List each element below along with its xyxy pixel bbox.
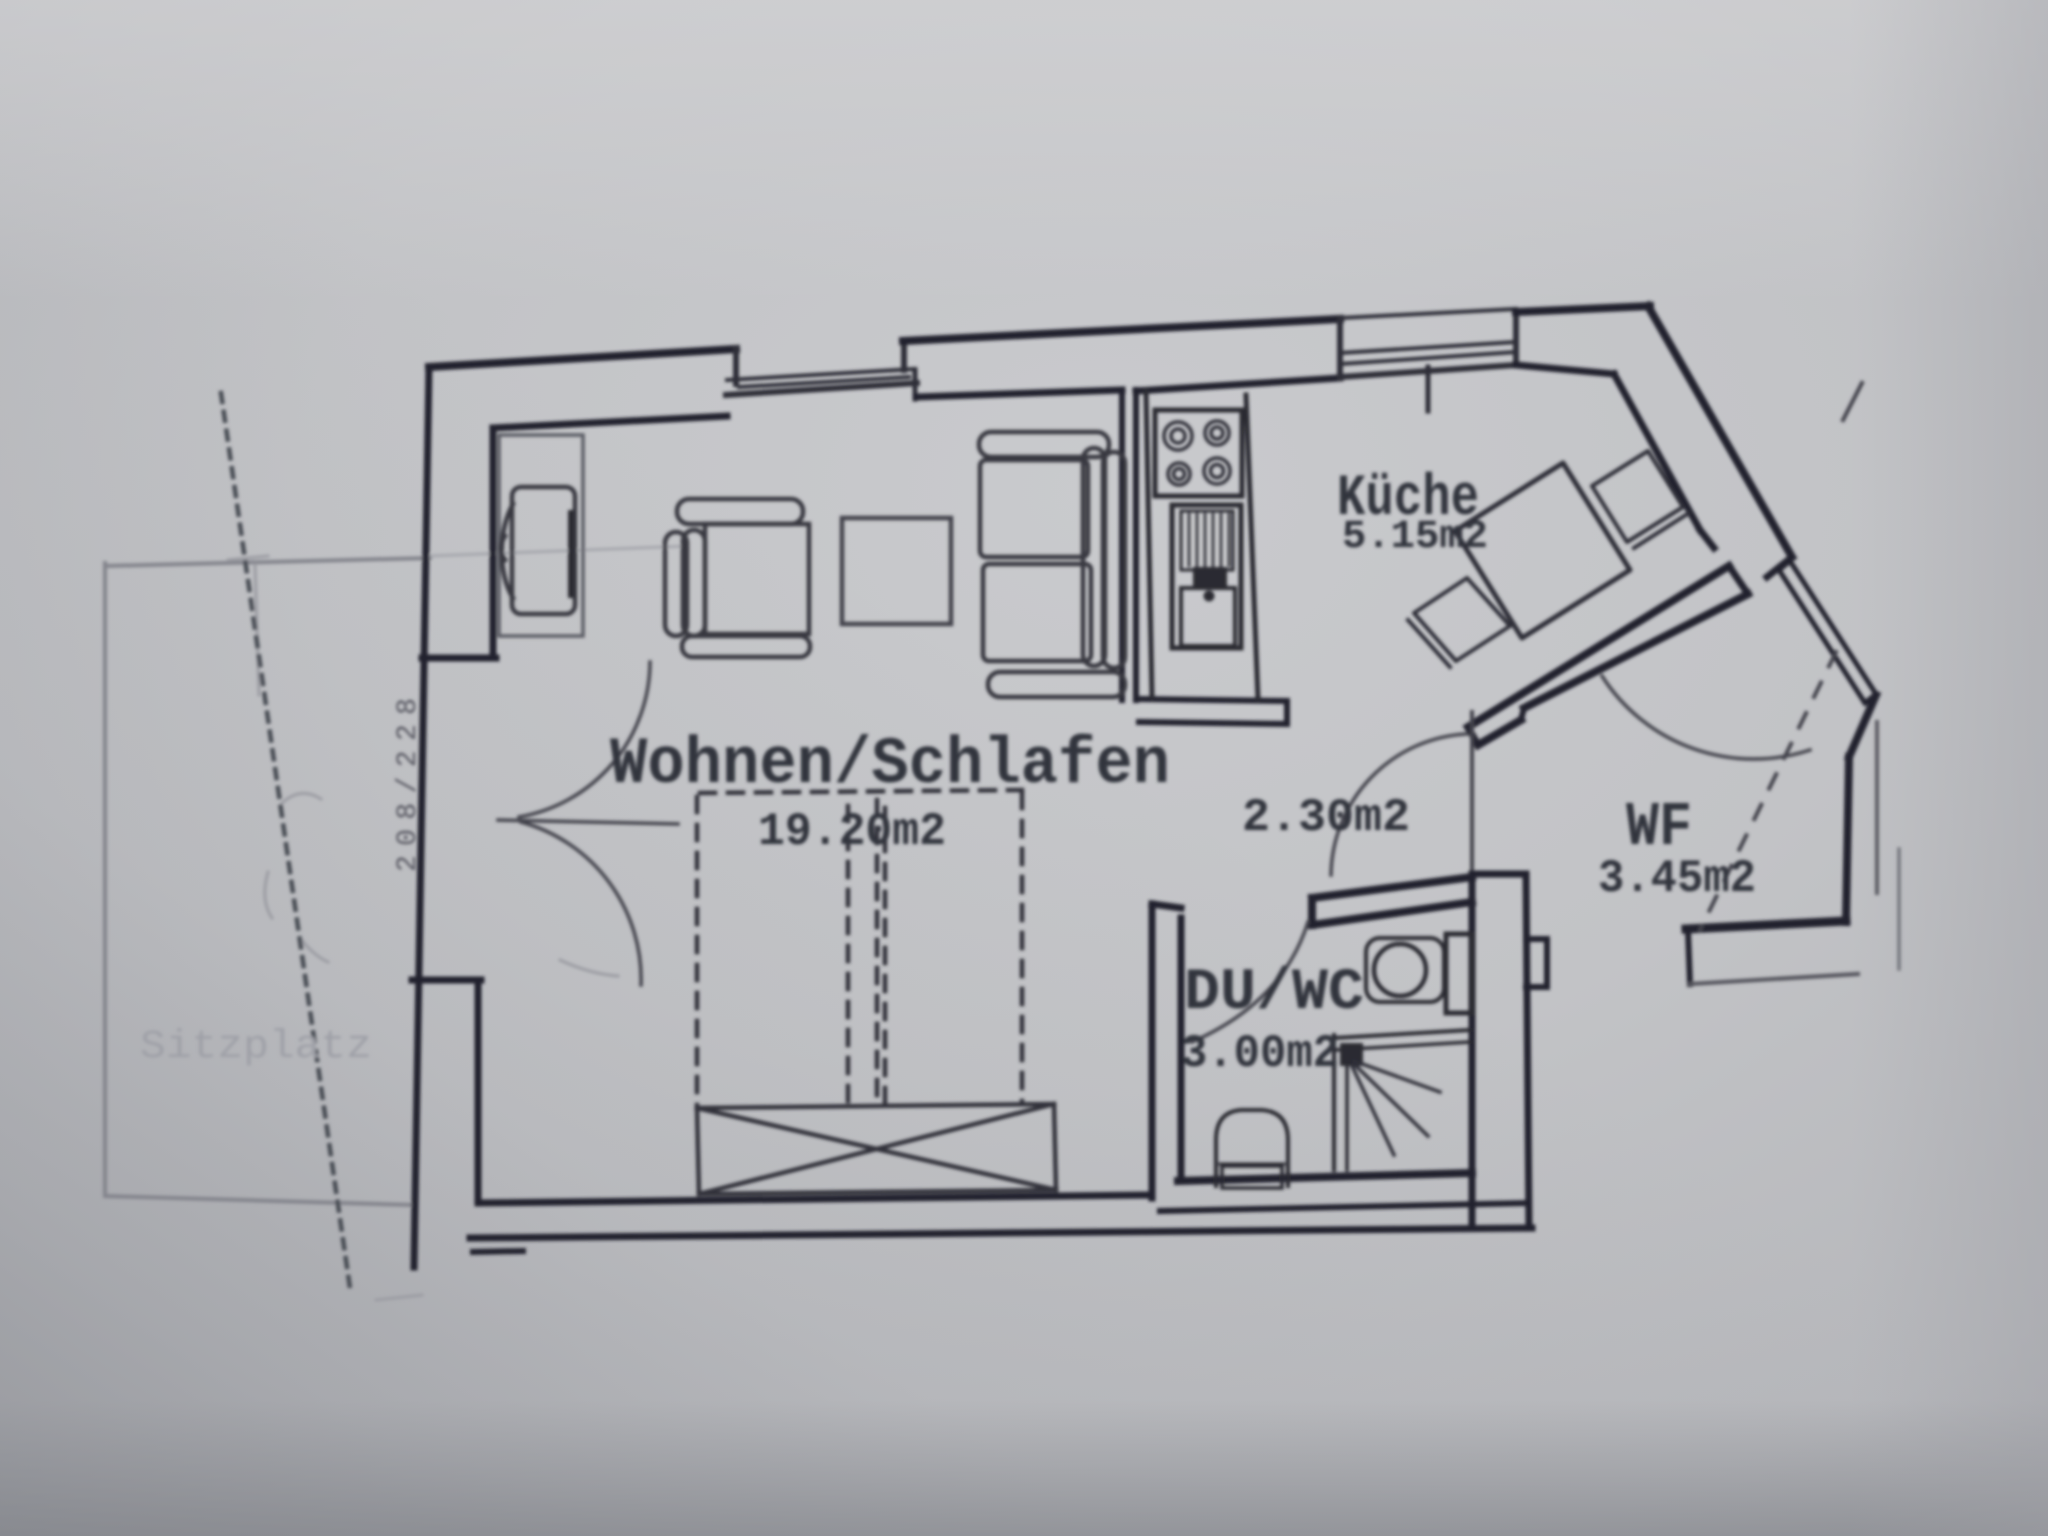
svg-text:2.30m2: 2.30m2 [1242,792,1410,844]
svg-text:3.45m2: 3.45m2 [1598,853,1756,905]
svg-text:5.15m2: 5.15m2 [1342,515,1488,560]
svg-text:19.20m2: 19.20m2 [758,806,946,858]
svg-text:Sitzplatz: Sitzplatz [140,1025,372,1070]
svg-text:DU/WC: DU/WC [1184,961,1364,1026]
svg-text:Wohnen/Schlafen: Wohnen/Schlafen [610,727,1170,802]
svg-text:3.00m2: 3.00m2 [1181,1028,1339,1080]
